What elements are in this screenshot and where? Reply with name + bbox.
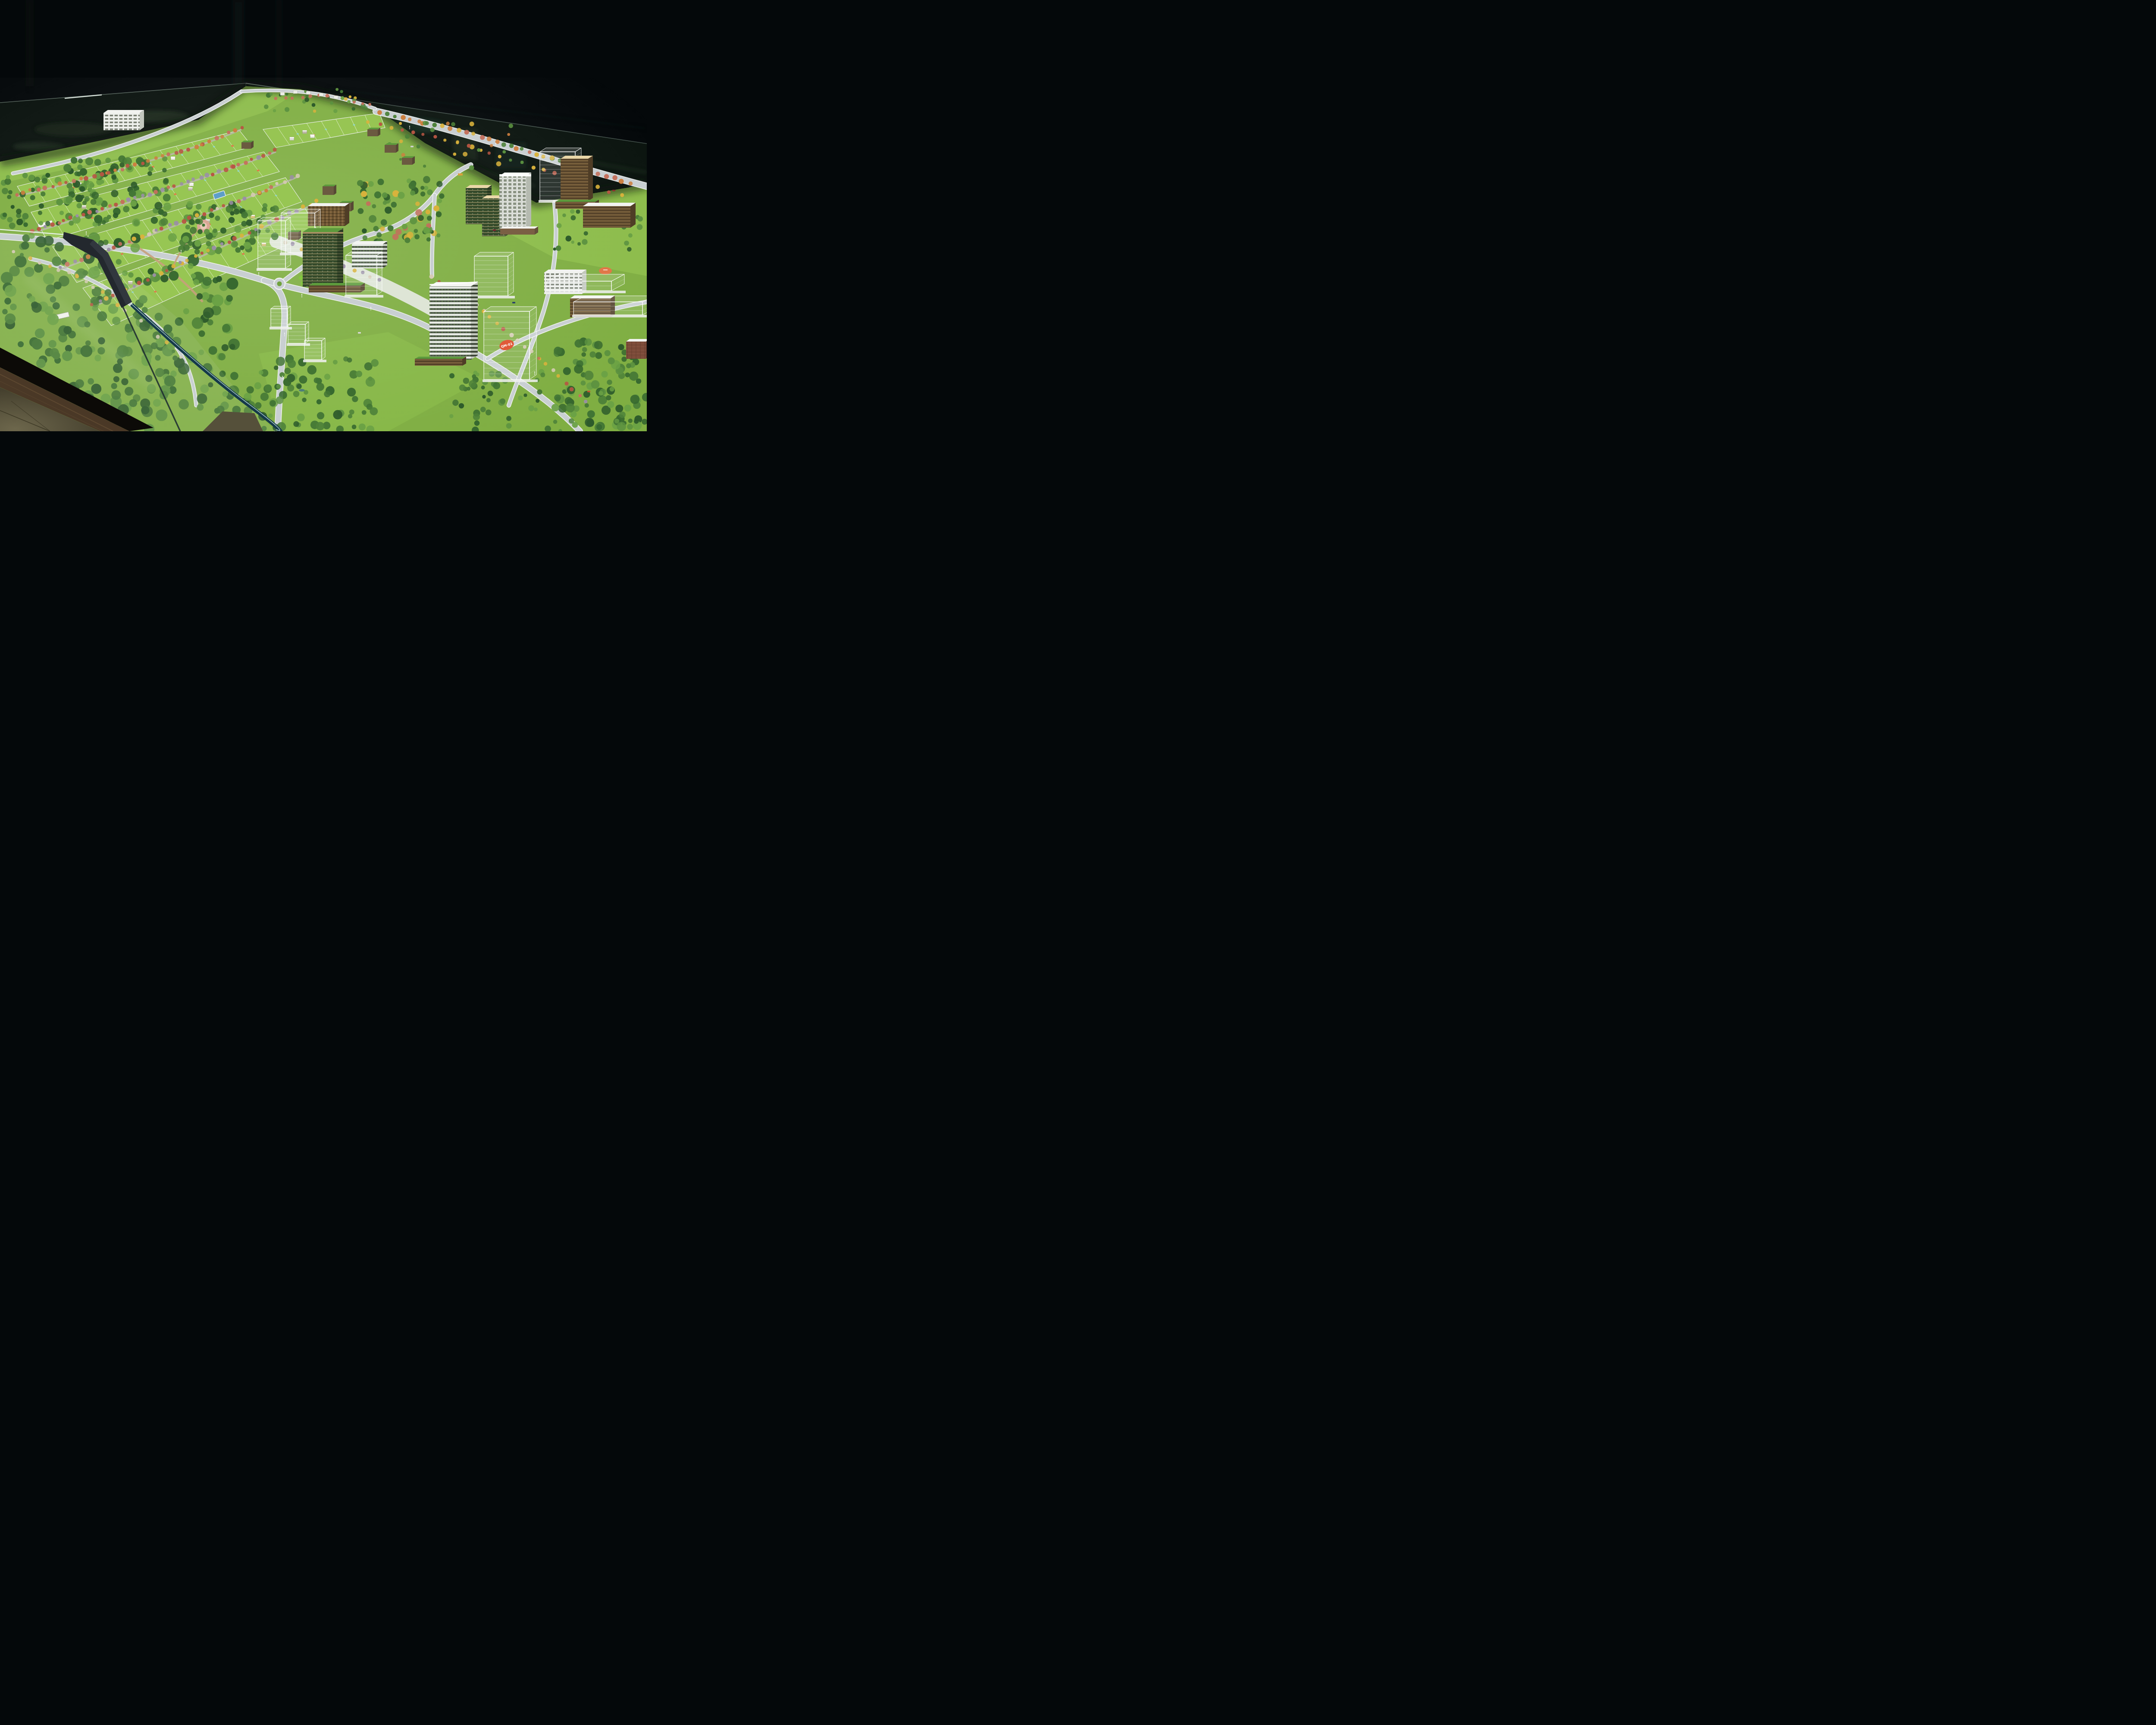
model-tree (123, 206, 129, 212)
acrylic-tower-top (346, 252, 382, 255)
flowering-tree (133, 196, 136, 199)
flowering-tree (172, 184, 175, 188)
acrylic-tower-qm-top (484, 307, 536, 311)
model-tree (276, 396, 284, 404)
model-tree (169, 271, 179, 281)
model-tree (420, 186, 424, 190)
flowering-tree (160, 226, 163, 230)
model-house-roof (171, 157, 175, 157)
green-roof-lowrise-body (367, 129, 378, 136)
model-tree (536, 399, 539, 403)
model-tree (585, 418, 594, 427)
green-tower-roof-edge (303, 232, 343, 234)
model-tree (626, 363, 631, 368)
model-tree (637, 224, 643, 230)
lamp-head (86, 232, 87, 232)
model-tree (100, 180, 104, 184)
orange-plot-marker (231, 145, 234, 147)
model-tree (341, 96, 345, 100)
flowering-tree (182, 219, 187, 224)
flowering-tree (480, 135, 485, 140)
flowering-tree (64, 181, 67, 184)
flowering-tree (84, 176, 88, 181)
timber-tower-roof (561, 156, 593, 159)
helipad (599, 267, 612, 275)
flowering-tree (258, 191, 261, 194)
flowering-tree (528, 150, 531, 154)
model-tree (601, 371, 608, 377)
acrylic-pad-body (573, 302, 642, 315)
model-tree (206, 241, 211, 246)
model-tree (514, 146, 519, 151)
model-tree (356, 371, 362, 377)
acrylic-tower-pad (257, 268, 292, 271)
flowering-tree (210, 208, 213, 212)
flowering-tree (326, 94, 329, 97)
scene-canvas: QM-01 (0, 0, 647, 431)
acrylic-villa-top (288, 322, 309, 324)
green-roof-lowrise-side (334, 185, 336, 195)
white-slab-roof (544, 270, 586, 273)
model-tree (94, 215, 103, 223)
flowering-tree (457, 128, 461, 133)
model-tree (571, 241, 574, 244)
model-car (612, 190, 615, 191)
model-tree (79, 186, 85, 192)
flowering-tree (268, 151, 271, 155)
acrylic-villa-body (271, 309, 287, 327)
model-tree (231, 241, 238, 248)
model-car (411, 146, 414, 147)
flowering-tree (186, 180, 190, 183)
flowering-tree (187, 216, 191, 220)
model-tree (147, 171, 152, 176)
green-tower-side (337, 228, 343, 287)
model-tree (183, 308, 189, 314)
flowering-tree (584, 400, 587, 403)
model-tree (574, 339, 583, 348)
model-tree (398, 192, 404, 199)
flowering-tree (301, 96, 304, 99)
model-tree (618, 344, 624, 350)
model-tree (624, 405, 631, 411)
model-tree (7, 195, 11, 199)
lamp-head (282, 376, 283, 377)
model-tree (480, 407, 486, 412)
model-tree (418, 215, 424, 221)
model-tree (84, 196, 89, 201)
model-house (334, 96, 338, 99)
flowering-tree (180, 182, 183, 185)
model-tree (619, 411, 626, 418)
acrylic-tower-side (508, 252, 514, 296)
flowering-tree (448, 126, 452, 131)
flowering-tree (274, 97, 277, 100)
model-tree (163, 178, 169, 183)
teal-plot-marker (275, 195, 277, 196)
flowering-tree (236, 163, 240, 166)
model-tree (486, 398, 491, 402)
flowering-tree (241, 126, 244, 129)
model-tree (105, 158, 111, 163)
flowering-tree (114, 203, 118, 207)
flowering-tree (231, 164, 235, 169)
flowering-tree (607, 190, 611, 194)
model-tree (426, 237, 431, 241)
teal-plot-marker (353, 124, 355, 125)
model-tree (423, 227, 430, 234)
flowering-tree (425, 121, 429, 125)
flowering-tree (612, 175, 617, 180)
model-tree (359, 423, 366, 430)
model-tree (449, 414, 453, 418)
balcony-tower-side (471, 282, 478, 360)
model-tree (634, 419, 639, 424)
model-tree (349, 410, 354, 415)
flowering-tree (275, 182, 278, 185)
lamp-head (409, 126, 410, 127)
model-tree (614, 419, 619, 423)
model-tree (402, 224, 407, 229)
model-tree (383, 201, 387, 205)
flowering-tree (75, 214, 78, 217)
acrylic-pad-top (547, 274, 624, 281)
photo-architectural-model: Photograph of an architectural scale mod… (0, 0, 647, 431)
model-tree (605, 350, 611, 356)
timber-slab-body (583, 206, 630, 228)
orange-plot-marker (154, 291, 157, 292)
model-tree (297, 384, 302, 389)
model-tree (45, 173, 50, 178)
model-tree (187, 201, 193, 207)
slab-building-roof (103, 110, 144, 113)
acrylic-tower-side (377, 252, 382, 295)
flowering-tree (185, 259, 188, 262)
model-tree (147, 268, 154, 275)
model-tree (385, 207, 392, 214)
white-grid-tower-side (526, 172, 531, 229)
green-roof-lowrise-body (323, 186, 334, 195)
model-tree (581, 352, 586, 357)
flowering-tree (456, 141, 459, 144)
model-tree (30, 195, 35, 200)
model-tree (436, 181, 442, 187)
brick-building-roof (626, 339, 647, 342)
model-tree (596, 424, 602, 430)
teal-plot-marker (204, 179, 206, 181)
flowering-tree (477, 148, 480, 152)
balcony-tower-body (429, 286, 471, 360)
flowering-tree (488, 151, 491, 154)
model-tree (197, 229, 203, 234)
flowering-tree (534, 152, 539, 157)
model-tree (163, 203, 172, 211)
helipad-mark (603, 270, 608, 270)
model-tree (436, 211, 442, 217)
model-tree (194, 240, 201, 247)
model-tree (437, 198, 442, 203)
model-tree (599, 391, 603, 395)
model-tree (273, 109, 276, 112)
model-tree (409, 182, 416, 189)
flowering-tree (401, 115, 406, 120)
acrylic-tower-top (474, 252, 514, 256)
flowering-tree (92, 174, 97, 179)
model-tree (317, 412, 324, 419)
flowering-tree (58, 182, 62, 186)
flowering-tree (87, 210, 92, 215)
green-tower-roof (303, 228, 343, 232)
flowering-tree (146, 159, 150, 163)
model-tree (423, 176, 430, 183)
model-tree (598, 395, 607, 405)
flowering-tree (155, 229, 158, 232)
acrylic-villa-top (304, 338, 325, 341)
model-tree (111, 175, 116, 180)
model-tree (316, 422, 324, 430)
model-tree (185, 225, 191, 230)
model-tree (576, 210, 580, 214)
flowering-tree (58, 221, 61, 225)
model-tree (552, 404, 559, 411)
model-tree (490, 144, 493, 147)
model-tree (316, 383, 324, 391)
flowering-tree (389, 126, 393, 130)
model-tree (405, 134, 410, 139)
flowering-tree (595, 172, 600, 176)
model-tree (584, 231, 588, 235)
model-tree (407, 232, 414, 238)
model-tree (276, 357, 285, 366)
model-tree (316, 378, 322, 384)
timber-tower-side (588, 156, 593, 201)
model-tree (235, 247, 241, 253)
model-tree (23, 222, 28, 227)
flowering-tree (216, 207, 219, 210)
model-tree (9, 223, 16, 229)
flowering-tree (379, 122, 382, 126)
timber-slab-side (345, 203, 349, 226)
model-house-roof (310, 135, 314, 135)
model-tree (488, 391, 493, 396)
timber-tower-body (561, 159, 588, 201)
flowering-tree (42, 185, 47, 190)
model-tree (474, 420, 480, 426)
lamp-head (301, 294, 302, 295)
flowering-tree (175, 151, 179, 155)
teal-plot-marker (297, 133, 299, 135)
flowering-tree (37, 188, 41, 191)
model-tree (347, 388, 356, 397)
model-house (293, 91, 298, 94)
model-tree (376, 232, 382, 238)
model-tree (481, 386, 485, 389)
brick-building-side (646, 339, 647, 359)
acrylic-villa-body (288, 324, 305, 343)
flowering-tree (201, 251, 204, 254)
model-tree (553, 420, 558, 424)
orange-plot-marker (242, 253, 244, 255)
green-roof-lowrise-body (241, 142, 251, 149)
model-tree (459, 384, 466, 391)
flowering-tree (214, 136, 219, 141)
flowering-tree (283, 180, 287, 184)
model-tree (190, 227, 197, 234)
model-tree (39, 203, 44, 208)
model-tree (362, 228, 367, 233)
model-tree (276, 384, 281, 389)
model-tree (459, 403, 464, 409)
flowering-tree (128, 240, 131, 244)
model-tree (151, 217, 158, 224)
flowering-tree (68, 216, 72, 220)
model-tree (628, 418, 633, 423)
flowering-tree (273, 148, 277, 152)
teal-plot-marker (169, 229, 171, 231)
flowering-tree (194, 254, 197, 258)
model-tree (107, 215, 111, 219)
model-tree (203, 307, 214, 318)
model-tree (160, 218, 168, 226)
model-tree (226, 278, 238, 289)
model-tree (85, 157, 94, 166)
lamp-head (284, 333, 285, 334)
model-tree (250, 234, 255, 238)
model-tree (188, 241, 193, 246)
model-house (280, 92, 285, 95)
flowering-tree (113, 169, 117, 172)
acrylic-tower-top (540, 148, 581, 152)
flowering-tree (44, 225, 47, 228)
flowering-tree (107, 171, 111, 175)
model-tree (302, 398, 307, 402)
model-tree (463, 378, 470, 384)
flowering-tree (141, 162, 144, 165)
green-roof-lowrise-body (385, 145, 396, 153)
flowering-tree (200, 176, 204, 180)
acrylic-tower-qm-pad (483, 379, 538, 382)
model-tree (410, 190, 415, 195)
flowering-tree (21, 191, 25, 195)
flowering-tree (154, 190, 158, 194)
model-tree (534, 408, 538, 411)
timber-slab-roof (583, 203, 636, 206)
flowering-tree (467, 144, 471, 147)
flowering-tree (256, 155, 261, 160)
model-tree (500, 398, 505, 404)
model-tree (101, 220, 106, 224)
model-tree (361, 191, 367, 197)
acrylic-tower-body (346, 255, 377, 295)
flowering-tree (556, 374, 560, 378)
model-tree (627, 247, 632, 252)
model-tree (424, 186, 428, 190)
model-tree (274, 365, 279, 370)
model-tree (285, 107, 289, 112)
model-tree (570, 209, 575, 214)
acrylic-tower-body (474, 256, 508, 296)
flowering-tree (174, 221, 179, 226)
model-bus (458, 173, 463, 176)
model-tree (222, 344, 229, 351)
flowering-tree (314, 199, 318, 203)
model-tree (209, 213, 214, 218)
model-tree (330, 101, 333, 105)
flowering-tree (344, 97, 348, 101)
model-tree (451, 122, 455, 126)
flowering-tree (112, 245, 116, 249)
model-tree (473, 413, 480, 420)
model-tree (580, 380, 586, 386)
model-tree (16, 219, 23, 225)
flowering-tree (37, 227, 41, 231)
model-tree (134, 220, 140, 226)
model-tree (417, 144, 420, 148)
model-tree (370, 407, 378, 415)
model-tree (196, 204, 202, 210)
model-house-roof (303, 130, 307, 131)
model-tree (540, 373, 545, 377)
orange-plot-marker (257, 169, 260, 171)
flowering-tree (417, 119, 421, 123)
flowering-tree (194, 145, 199, 150)
flowering-tree (269, 185, 273, 189)
flowering-tree (520, 147, 523, 151)
flowering-tree (440, 123, 444, 128)
model-tree (608, 358, 615, 364)
acrylic-villa-top (271, 306, 291, 309)
model-tree (395, 229, 401, 235)
model-tree (209, 346, 217, 355)
timber-slab-roof (308, 203, 349, 206)
model-tree (183, 244, 190, 251)
model-tree (569, 418, 574, 423)
model-tree (391, 202, 397, 208)
model-tree (372, 204, 376, 208)
model-tree (305, 94, 308, 97)
model-tree (469, 380, 476, 388)
flowering-tree (220, 242, 224, 246)
slab-building-side (140, 110, 144, 130)
flowering-tree (433, 135, 437, 138)
flowering-tree (509, 159, 512, 162)
flowering-tree (537, 357, 540, 360)
flowering-tree (159, 271, 164, 276)
flowering-tree (121, 168, 124, 171)
flowering-tree (206, 249, 210, 252)
green-tower-body (303, 232, 337, 287)
model-tree (244, 393, 251, 401)
flowering-tree (147, 192, 152, 197)
model-tree (427, 189, 432, 195)
white-tower-parapet (499, 174, 531, 176)
model-tree (148, 166, 154, 172)
model-tree (7, 217, 13, 223)
flowering-tree (51, 185, 54, 188)
model-tree (574, 364, 583, 373)
model-tree (377, 179, 384, 185)
model-tree (119, 162, 125, 167)
model-tree (34, 177, 40, 182)
model-tree (42, 178, 48, 184)
model-house (319, 93, 323, 96)
model-tree (357, 208, 364, 214)
flowering-tree (552, 368, 555, 372)
flowering-tree (216, 169, 221, 174)
flowering-tree (50, 223, 55, 227)
model-tree (234, 226, 241, 232)
model-tree (352, 396, 358, 402)
